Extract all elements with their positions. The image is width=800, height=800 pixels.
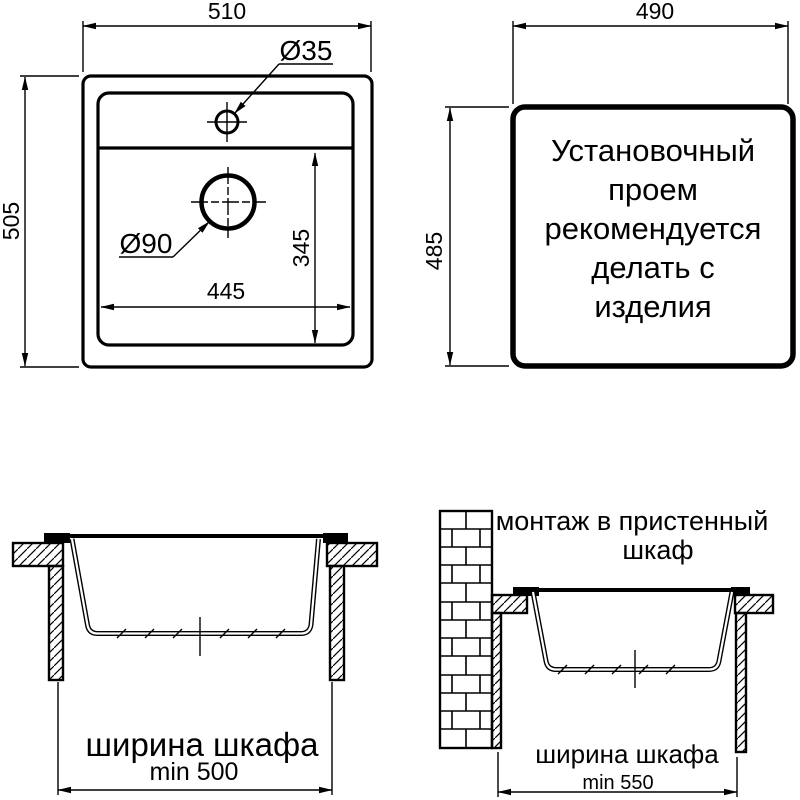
faucet-hole-centerlines: [207, 102, 247, 142]
cutout-view: 490 485 Установочный проем рекомендуется…: [421, 0, 793, 366]
sink-clamp-right: [323, 533, 348, 543]
cabinet-wall-right: [736, 613, 746, 752]
sink-clamp-left: [44, 533, 70, 543]
cabinet-width-min-label: min 550: [582, 772, 653, 794]
cutout-note-line1: Установочный: [551, 133, 755, 168]
drain-hole-dim-label: Ø90: [120, 228, 173, 259]
section-view-standard-cabinet: ширина шкафа min 500: [13, 533, 377, 795]
drawing-canvas: Ø35 Ø90 445 345 510 505 490 48: [0, 0, 800, 800]
wall-mount-caption-line1: монтаж в пристенный: [496, 506, 769, 536]
bowl-depth-dim-label: 345: [288, 229, 314, 267]
cabinet-wall-left: [49, 566, 63, 680]
cabinet-width-label: ширина шкафа: [535, 739, 719, 769]
cutout-note-line4: делать с: [591, 250, 714, 285]
section-view-wall-cabinet: монтаж в пристенный шкаф ширина шкафа mi…: [440, 506, 773, 797]
faucet-leader-line: [235, 64, 280, 114]
cutout-height-dim-label: 485: [421, 232, 447, 270]
countertop-left: [492, 595, 527, 613]
cutout-width-dim-label: 490: [636, 0, 674, 24]
bowl-profile-inner: [533, 592, 732, 670]
cutout-note: Установочный проем рекомендуется делать …: [545, 133, 762, 324]
overall-height-ext-lines: [20, 76, 79, 367]
cabinet-width-min-label: min 500: [150, 758, 239, 786]
cutout-width-ext-lines: [513, 21, 788, 104]
wall-mount-caption-line2: шкаф: [622, 535, 693, 565]
cabinet-wall-left-strip: [492, 613, 501, 748]
bowl-profile-inner: [72, 539, 319, 634]
countertop-left: [13, 543, 63, 566]
bowl-profile-outer: [533, 592, 732, 670]
overall-height-dim-label: 505: [0, 202, 24, 240]
cutout-note-line3: рекомендуется: [545, 211, 762, 246]
cutout-note-line5: изделия: [594, 289, 711, 324]
bowl-width-dim-label: 445: [207, 278, 245, 304]
sink-top-view: Ø35 Ø90 445 345 510 505: [0, 0, 372, 367]
countertop-right: [735, 595, 773, 613]
cabinet-wall-right: [330, 566, 344, 680]
faucet-hole-dim-label: Ø35: [280, 35, 333, 66]
drain-leader-line: [173, 222, 210, 258]
cutout-note-line2: проем: [608, 172, 698, 207]
sink-installation-drawing: Ø35 Ø90 445 345 510 505 490 48: [0, 0, 800, 800]
bowl-profile-outer: [72, 539, 319, 634]
overall-width-dim-label: 510: [208, 0, 246, 24]
cutout-height-ext-lines: [445, 107, 509, 366]
countertop-right: [327, 543, 377, 566]
